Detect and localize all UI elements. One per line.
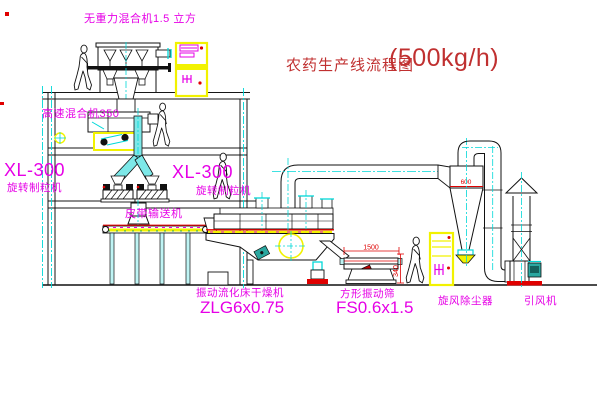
label-belt-conveyor: 皮带输送机	[125, 209, 183, 220]
label-granulator-left-model: XL-300	[4, 161, 65, 179]
screen-length-dim: 1500	[363, 245, 379, 252]
vibrating-screen: 1500 340	[320, 241, 404, 284]
control-cabinet-top	[176, 43, 207, 96]
fan-motor	[528, 262, 541, 278]
label-fan: 引风机	[524, 296, 557, 307]
label-dryer-name: 振动流化床干燥机	[196, 288, 284, 299]
label-cyclone: 旋风除尘器	[438, 296, 493, 307]
induced-draft-fan	[485, 261, 543, 286]
fluid-bed-dryer	[204, 190, 334, 285]
control-cabinet-cyclone	[430, 233, 453, 285]
person-ground	[406, 237, 424, 283]
belt-conveyor	[103, 225, 209, 284]
diagram-title-capacity: (500kg/h)	[389, 44, 499, 73]
pesticide-line-flow-diagram: 1500 340 600	[0, 0, 600, 403]
label-high-speed-mixer: 高速混合机350	[42, 109, 119, 120]
person-second-floor	[153, 103, 170, 146]
label-granulator-left-name: 旋转制粒机	[7, 183, 62, 194]
label-granulator-right-name: 旋转制粒机	[196, 186, 251, 197]
label-gravity-mixer: 无重力混合机1.5 立方	[84, 14, 196, 25]
granulator-right	[135, 176, 169, 202]
granulator-left	[101, 176, 135, 202]
screen-height-dim: 340	[393, 265, 400, 277]
plot-marks	[0, 12, 9, 105]
label-screen-model: FS0.6x1.5	[336, 299, 414, 316]
label-granulator-right-model: XL-300	[172, 163, 233, 181]
label-dryer-model: ZLG6x0.75	[200, 299, 284, 316]
